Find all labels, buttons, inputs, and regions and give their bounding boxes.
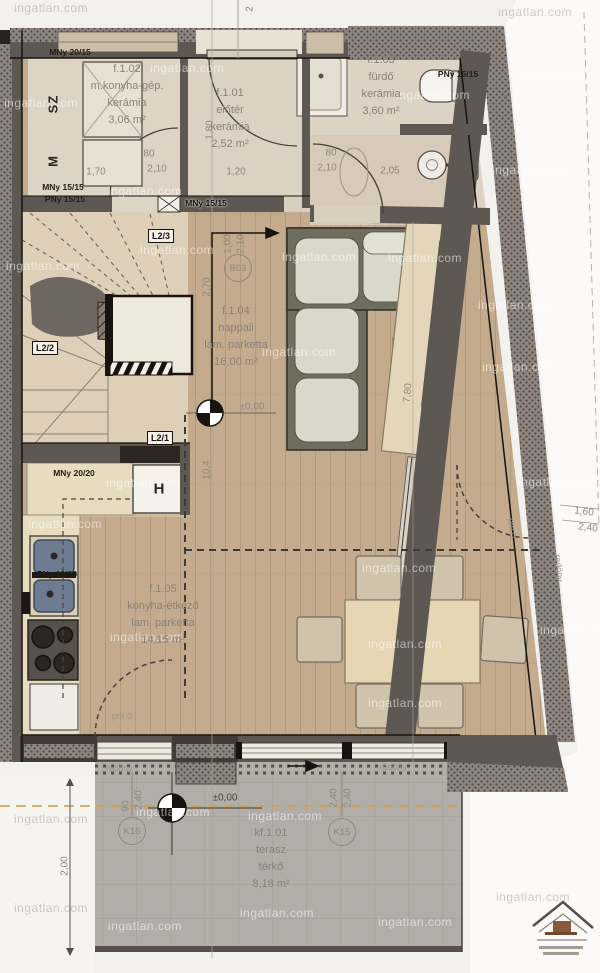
room-id: kf.1.01	[252, 825, 289, 842]
opening-marker: B03	[224, 254, 252, 282]
opening-marker: K15	[328, 818, 356, 846]
room-name: m.konyha-gép.	[91, 78, 164, 95]
washbasin	[418, 151, 446, 179]
room-name: terasz	[252, 842, 289, 859]
dishwasher	[30, 684, 78, 730]
room-label-f101: f.1.01 előtér kerámia 2,52 m²	[210, 85, 249, 153]
logo-house	[553, 921, 571, 932]
room-floor: lam. parketta	[204, 337, 268, 354]
top-window-small	[306, 32, 344, 54]
room-name: konyha-étkező	[127, 598, 199, 615]
stair-level-badge: L2/2	[32, 341, 58, 355]
opening-marker: K16	[118, 817, 146, 845]
room-floor: kerámia	[361, 86, 400, 103]
room-area: 16,00 m²	[204, 354, 268, 371]
stair-hatched-bar	[110, 362, 172, 375]
room-name: előtér	[210, 102, 249, 119]
stair-level-badge: L2/1	[147, 431, 173, 445]
fridge	[133, 465, 185, 513]
window	[350, 743, 448, 759]
builder-logo	[525, 888, 597, 960]
chair	[480, 616, 528, 664]
floor-plan-drawing	[0, 0, 600, 973]
room-label-f102: f.1.02 m.konyha-gép. kerámia 3,06 m²	[91, 61, 164, 129]
room-floor: kerámia	[210, 119, 249, 136]
room-area: 2,52 m²	[210, 136, 249, 153]
room-id: f.1.01	[210, 85, 249, 102]
room-area: 8,18 m²	[252, 876, 289, 893]
chair	[297, 617, 342, 662]
terrace-pier	[176, 762, 236, 784]
room-name: nappali	[204, 320, 268, 337]
room-label-f105: f.1.05 konyha-étkező lam. parketta 14,15…	[127, 581, 199, 649]
staircase	[22, 212, 192, 458]
room-name: fürdő	[361, 69, 400, 86]
room-id: f.1.04	[204, 303, 268, 320]
room-floor: térkő	[252, 859, 289, 876]
room-area: 3,06 m²	[91, 112, 164, 129]
floor-plan: ingatlan.comingatlan.comingatlan.cominga…	[0, 0, 600, 973]
washer	[83, 140, 142, 186]
kitchen-door-window	[97, 742, 172, 760]
stair-level-badge: L2/3	[148, 229, 174, 243]
room-id: f.1.02	[91, 61, 164, 78]
room-label-kf101: kf.1.01 terasz térkő 8,18 m²	[252, 825, 289, 893]
room-id: f.1.03	[361, 52, 400, 69]
room-area: 3,60 m²	[361, 103, 400, 120]
room-floor: kerámia	[91, 95, 164, 112]
room-id: f.1.05	[127, 581, 199, 598]
chair	[418, 684, 463, 728]
room-label-f104: f.1.04 nappali lam. parketta 16,00 m²	[204, 303, 268, 371]
chair	[356, 556, 401, 600]
room-floor: lam. parketta	[127, 615, 199, 632]
room-area: 14,15 m²	[127, 632, 199, 649]
window	[240, 743, 344, 759]
room-label-f103: f.1.03 fürdő kerámia 3,60 m²	[361, 52, 400, 120]
